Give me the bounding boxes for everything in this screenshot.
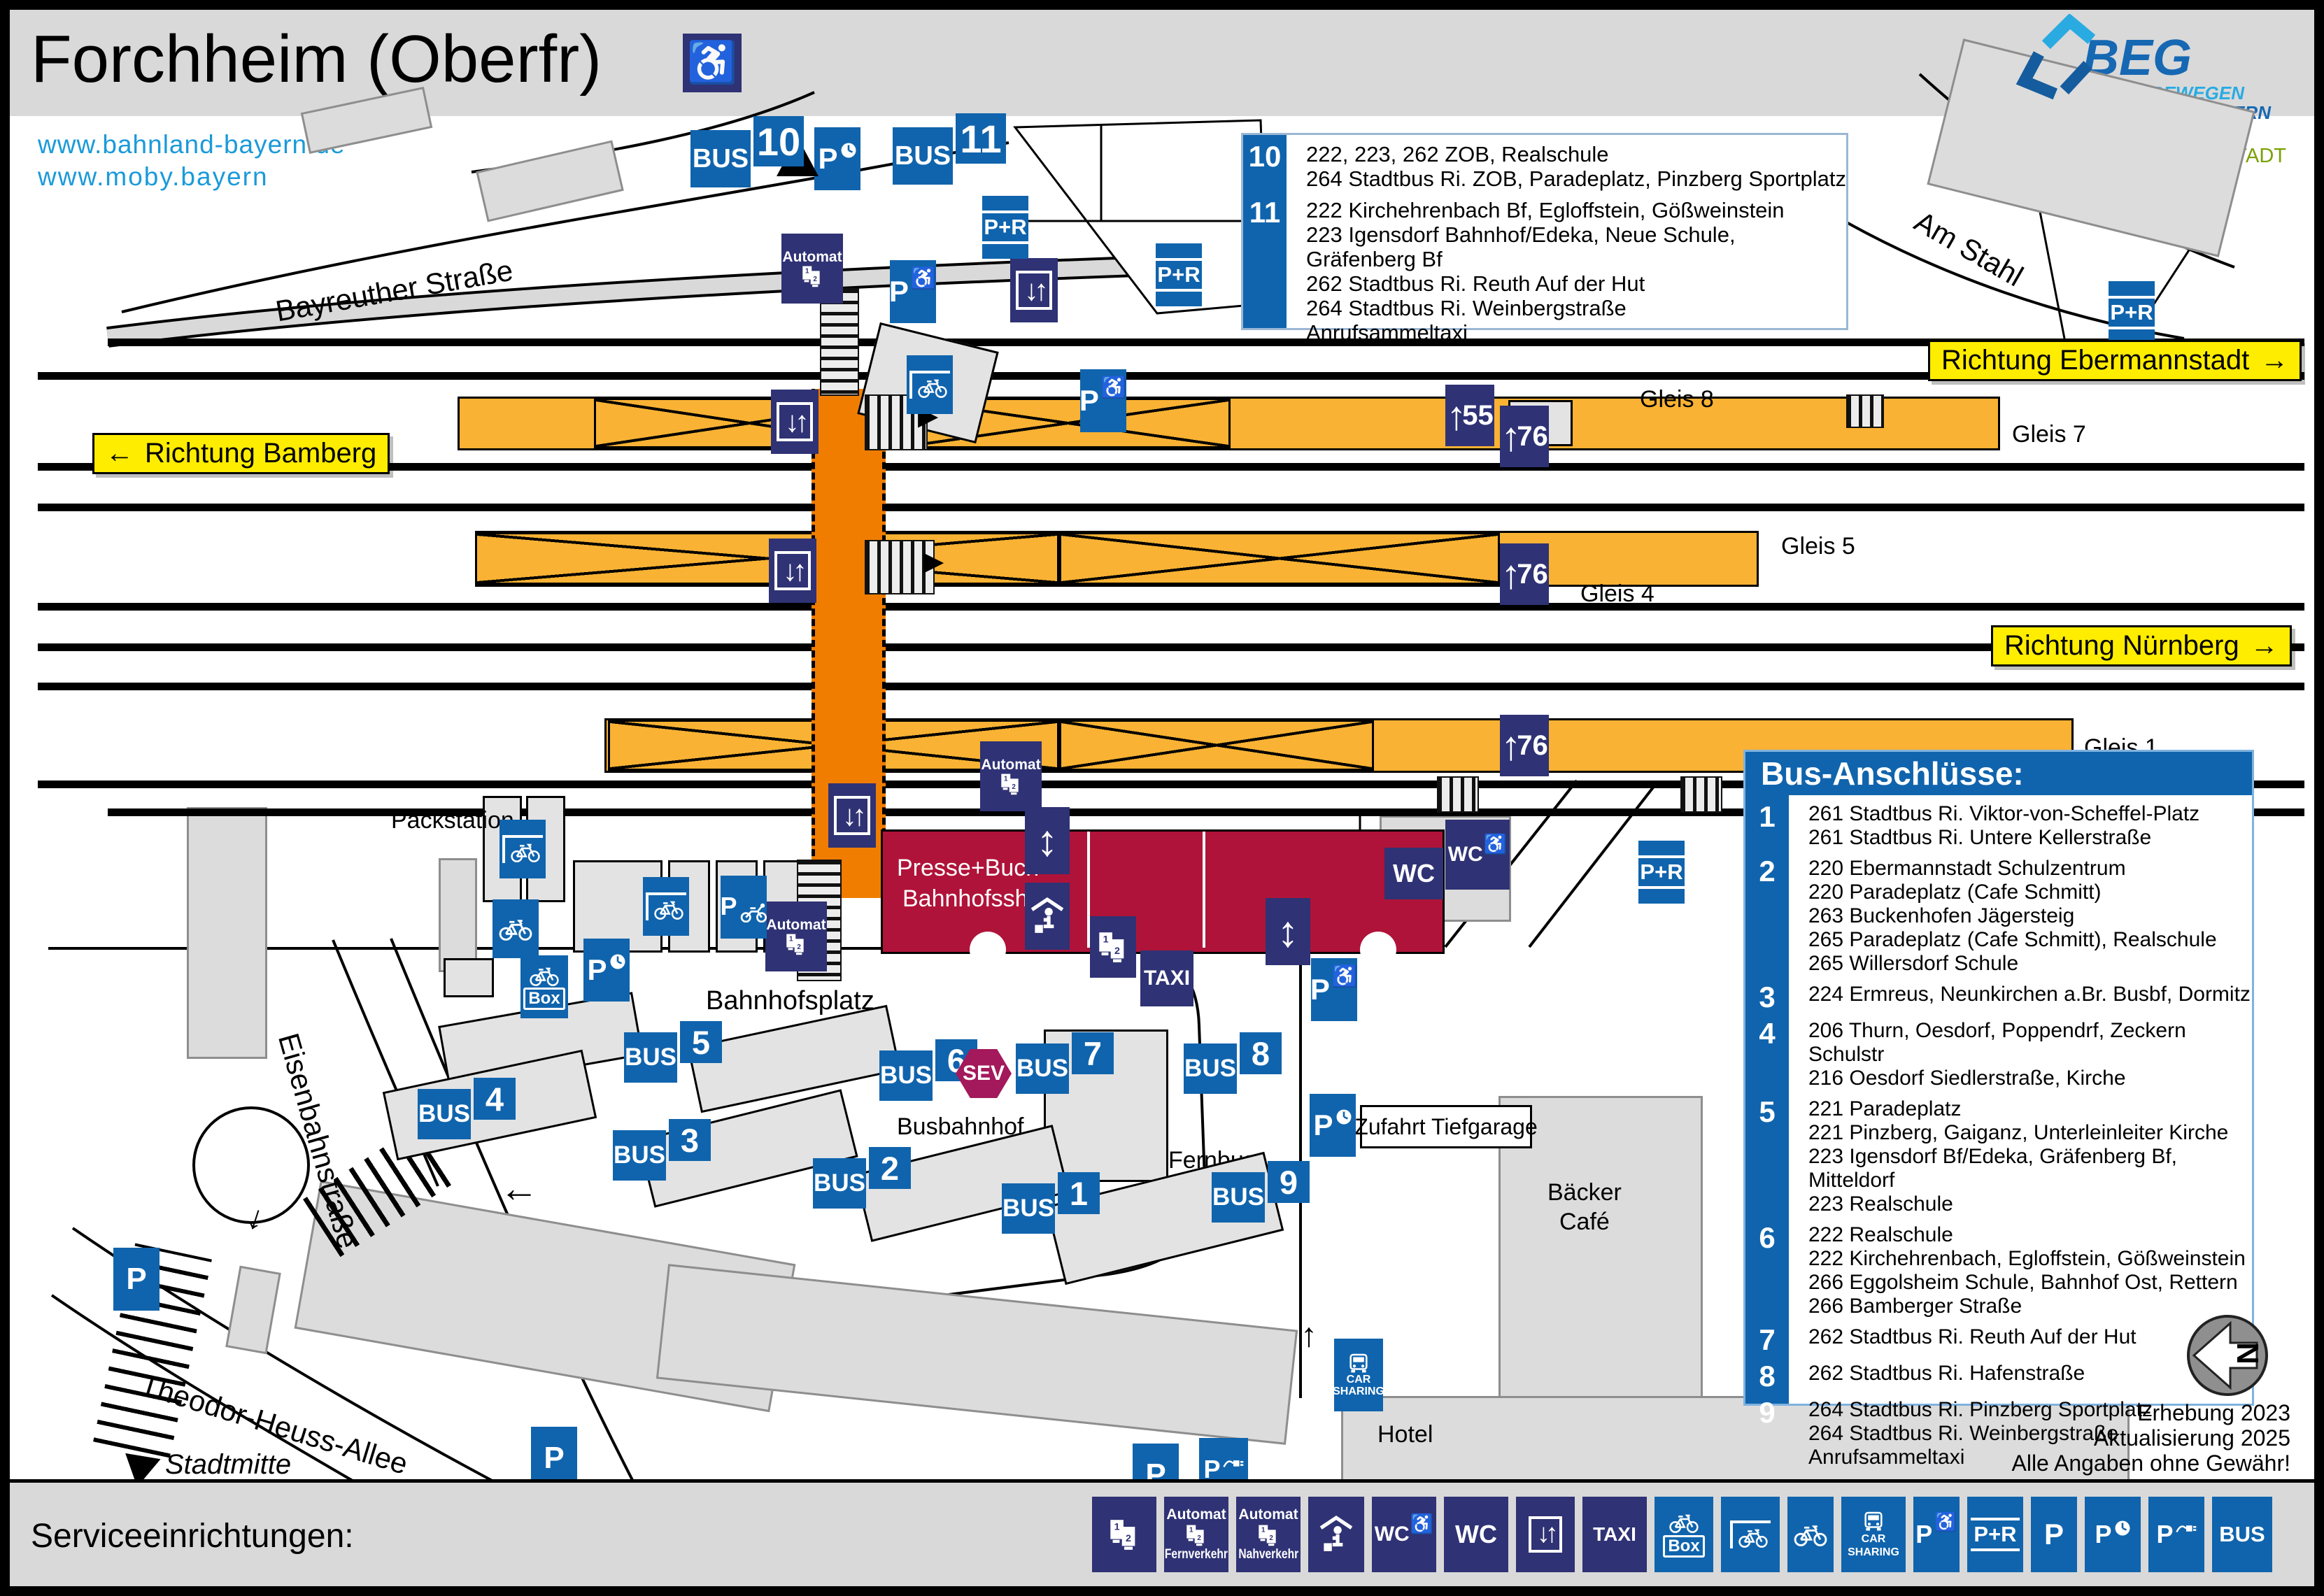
route-line: 261 Stadtbus Ri. Viktor-von-Scheffel-Pla… [1808, 802, 2199, 826]
route-group: 5221 Paradeplatz221 Pinzberg, Gaiganz, U… [1745, 1097, 2252, 1216]
stop-number: 2 [1745, 857, 1789, 976]
taxi-icon: TAXI [1582, 1497, 1647, 1572]
platform-height-76-sign: ↑76 [1500, 543, 1549, 605]
bus-stop-8: BUS8 [1184, 1043, 1282, 1094]
car-sharing-icon: CARSHARING [1841, 1497, 1906, 1572]
elevator-icon: ↓↑ [771, 390, 819, 454]
gleis-5-label: Gleis 5 [1781, 533, 1855, 560]
bike-box-icon: Box [1655, 1497, 1713, 1572]
taxi-icon: TAXI [1140, 950, 1193, 1006]
bus-connections-box: Bus-Anschlüsse: 1261 Stadtbus Ri. Viktor… [1743, 750, 2254, 1406]
route-group: 1261 Stadtbus Ri. Viktor-von-Scheffel-Pl… [1745, 802, 2252, 850]
ticket-machine-local-icon: AutomatNahverkehr [1236, 1497, 1301, 1572]
bus-connections-list: 1261 Stadtbus Ri. Viktor-von-Scheffel-Pl… [1745, 795, 2252, 1404]
bus-stop-7: BUS7 [1016, 1043, 1114, 1094]
covered-bike-parking-icon [1721, 1497, 1780, 1572]
elevator-vertical-icon: ↕ [1025, 807, 1070, 874]
route-line: 264 Stadtbus Ri. Weinbergstraße [1306, 296, 1846, 320]
stop-number: 10 [1243, 142, 1287, 191]
route-lines: 262 Stadtbus Ri. Reuth Auf der Hut [1789, 1325, 2137, 1355]
route-lines: 261 Stadtbus Ri. Viktor-von-Scheffel-Pla… [1789, 802, 2199, 850]
baecker-label-1: Bäcker [1547, 1179, 1622, 1206]
arrow-left-icon: ← [106, 438, 134, 469]
gleis-4-label: Gleis 4 [1580, 580, 1655, 608]
route-group: 2220 Ebermannstadt Schulzentrum220 Parad… [1745, 857, 2252, 976]
parking-accessible-icon: P♿ [1913, 1497, 1960, 1572]
gleis-7-label: Gleis 7 [2012, 421, 2086, 448]
zufahrt-tiefgarage-box: Zufahrt Tiefgarage [1360, 1105, 1532, 1148]
wc-icon: WC [1444, 1497, 1508, 1572]
wc-accessible-icon: WC♿ [1372, 1497, 1436, 1572]
note-gewaehr: Alle Angaben ohne Gewähr! [2011, 1451, 2290, 1476]
route-line: 222, 223, 262 ZOB, Realschule [1306, 142, 1846, 166]
route-line: 223 Igensdorf Bahnhof/Edeka, Neue Schule… [1306, 222, 1846, 271]
bus-stop-4: BUS4 [418, 1089, 516, 1139]
ticket-machine-icon: Automat [781, 234, 843, 304]
route-line: 222 Realschule [1808, 1223, 2246, 1247]
stairs-arrow: ▶ [923, 546, 944, 577]
covered-bike-parking-icon [643, 877, 689, 936]
parking-shortterm-icon: P [583, 939, 630, 1002]
accessible-station-icon: ♿ [683, 34, 742, 92]
packstation-building [439, 858, 477, 972]
ticket-counter-icon [1092, 1497, 1156, 1572]
platform-height-76-sign: ↑76 [1500, 406, 1549, 467]
parking-icon: P [2031, 1497, 2077, 1572]
stop-number: 8 [1745, 1362, 1789, 1391]
route-lines: 222 Kirchehrenbach Bf, Egloffstein, Gößw… [1287, 198, 1846, 345]
route-line: 262 Stadtbus Ri. Reuth Auf der Hut [1808, 1325, 2137, 1349]
bus-connections-title: Bus-Anschlüsse: [1745, 752, 2252, 795]
park-and-ride-icon: P+R [1967, 1497, 2023, 1572]
bus-stop-5: BUS5 [624, 1032, 722, 1083]
note-aktualisierung: Aktualisierung 2025 [2094, 1425, 2290, 1451]
route-line: 206 Thurn, Oesdorf, Poppendrf, Zeckern S… [1808, 1019, 2252, 1067]
road-arrow-up-icon: ↑ [1301, 1316, 1317, 1355]
ticket-machine-icon: Automat [765, 902, 827, 971]
packstation-label: Packstation [391, 807, 514, 834]
road-arrow-left-icon: ← [499, 1165, 539, 1211]
bike-parking-icon [1787, 1497, 1834, 1572]
route-group: 3224 Ermreus, Neunkirchen a.Br. Busbf, D… [1745, 983, 2252, 1012]
route-line: 262 Stadtbus Ri. Hafenstraße [1808, 1362, 2085, 1385]
station-arch [970, 932, 1006, 968]
track [38, 504, 2304, 511]
route-lines: 262 Stadtbus Ri. Hafenstraße [1789, 1362, 2085, 1391]
stop-number: 1 [1745, 802, 1789, 850]
bus-stop-1: BUS1 [1002, 1183, 1100, 1234]
park-and-ride-icon: P+R [982, 196, 1028, 259]
stadtmitte-label: Stadtmitte [165, 1449, 291, 1481]
track [38, 683, 2304, 690]
bahnhofsplatz-label: Bahnhofsplatz [706, 986, 874, 1016]
stairs [1680, 776, 1722, 813]
wc-accessible-icon: WC♿ [1445, 820, 1510, 890]
stop-number: 3 [1745, 983, 1789, 1012]
bike-shelter [444, 958, 494, 997]
top-routes-box: 10222, 223, 262 ZOB, Realschule264 Stadt… [1241, 133, 1848, 330]
elevator-icon: ↓↑ [1010, 258, 1058, 322]
baecker-label-2: Café [1559, 1209, 1610, 1236]
parking-accessible-icon: P♿ [890, 260, 936, 323]
stop-number: 11 [1243, 198, 1287, 345]
route-line: 216 Oesdorf Siedlerstraße, Kirche [1808, 1067, 2252, 1090]
moped-parking-icon: P [721, 876, 767, 939]
compass-icon: N [2184, 1312, 2271, 1399]
park-and-ride-icon: P+R [2109, 281, 2155, 344]
parking-charging-icon: P [2148, 1497, 2204, 1572]
route-line: 264 Stadtbus Ri. Pinzberg Sportplatz [1808, 1398, 2153, 1422]
platform-roof [1059, 532, 1500, 585]
route-line: 224 Ermreus, Neunkirchen a.Br. Busbf, Do… [1808, 983, 2251, 1006]
route-line: 220 Ebermannstadt Schulzentrum [1808, 857, 2217, 881]
route-line: 266 Eggolsheim Schule, Bahnhof Ost, Rett… [1808, 1271, 2246, 1295]
ticket-counter-icon [1090, 916, 1136, 978]
elevator-vertical-icon: ↕ [1266, 898, 1310, 965]
platform-height-55-sign: ↑55 [1445, 385, 1494, 446]
station-map-page: Forchheim (Oberfr) ♿ BEG WIR BEWEGEN DAS… [0, 0, 2324, 1596]
wc-icon: WC [1384, 848, 1443, 899]
bike-box-icon: Box [520, 955, 568, 1018]
hotel-label: Hotel [1377, 1421, 1433, 1448]
route-group: 4206 Thurn, Oesdorf, Poppendrf, Zeckern … [1745, 1019, 2252, 1090]
route-line: Anrufsammeltaxi [1306, 320, 1846, 345]
legend-row: AutomatFernverkehr AutomatNahverkehr WC♿… [1092, 1497, 2272, 1572]
route-line: 265 Paradeplatz (Cafe Schmitt), Realschu… [1808, 928, 2217, 952]
route-line: 222 Kirchehrenbach, Egloffstein, Gößwein… [1808, 1247, 2246, 1271]
route-line: 266 Bamberger Straße [1808, 1295, 2246, 1318]
elevator-icon: ↓↑ [769, 539, 816, 603]
bus-stop-icon: BUS [2212, 1497, 2272, 1572]
bus-stop-3: BUS3 [613, 1130, 711, 1181]
building-divider [1203, 832, 1205, 948]
route-lines: 222 Realschule222 Kirchehrenbach, Egloff… [1789, 1223, 2246, 1318]
direction-bamberg: ← Richtung Bamberg [92, 433, 390, 474]
parking-icon: P [113, 1248, 160, 1311]
bus-stop-11: BUS11 [893, 127, 1006, 185]
bus-stop-2: BUS2 [813, 1158, 911, 1209]
waiting-area-icon [1308, 1497, 1364, 1572]
stop-number: 4 [1745, 1019, 1789, 1090]
route-lines: 220 Ebermannstadt Schulzentrum220 Parade… [1789, 857, 2217, 976]
route-line: 221 Paradeplatz [1808, 1097, 2252, 1121]
gleis-8-label: Gleis 8 [1640, 386, 1714, 413]
route-line: 261 Stadtbus Ri. Untere Kellerstraße [1808, 826, 2199, 850]
car-sharing-icon: CARSHARING [1334, 1339, 1383, 1411]
ticket-machine-longdistance-icon: AutomatFernverkehr [1164, 1497, 1228, 1572]
arrow-right-icon: → [2251, 630, 2279, 662]
park-and-ride-icon: P+R [1156, 243, 1202, 306]
route-group: 10222, 223, 262 ZOB, Realschule264 Stadt… [1243, 142, 1846, 191]
stop-number: 7 [1745, 1325, 1789, 1355]
route-lines: 221 Paradeplatz221 Pinzberg, Gaiganz, Un… [1789, 1097, 2252, 1216]
stop-number: 9 [1745, 1398, 1789, 1469]
bus-stop-9: BUS9 [1212, 1172, 1310, 1223]
platform-height-76-sign: ↑76 [1500, 715, 1549, 776]
route-lines: 206 Thurn, Oesdorf, Poppendrf, Zeckern S… [1789, 1019, 2252, 1090]
bike-parking-icon [493, 899, 539, 958]
covered-bike-parking-icon [907, 355, 953, 414]
route-group: 11222 Kirchehrenbach Bf, Egloffstein, Gö… [1243, 198, 1846, 345]
route-group: 7262 Stadtbus Ri. Reuth Auf der Hut [1745, 1325, 2252, 1355]
waiting-area-icon [1025, 883, 1070, 950]
shop-label-line1: Presse+Buch [897, 855, 1039, 882]
route-lines: 224 Ermreus, Neunkirchen a.Br. Busbf, Do… [1789, 983, 2251, 1012]
route-line: 265 Willersdorf Schule [1808, 952, 2217, 976]
direction-nuernberg: Richtung Nürnberg → [1991, 625, 2292, 667]
elevator-icon: ↓↑ [1516, 1497, 1575, 1572]
top-routes-list: 10222, 223, 262 ZOB, Realschule264 Stadt… [1243, 135, 1846, 328]
stop-number: 5 [1745, 1097, 1789, 1216]
parking-accessible-icon: P♿ [1080, 369, 1126, 432]
parking-accessible-icon: P♿ [1311, 958, 1357, 1021]
direction-ebermannstadt: Richtung Ebermannstadt → [1928, 340, 2302, 381]
parking-shortterm-icon: P [2085, 1497, 2141, 1572]
elevator-icon: ↓↑ [828, 783, 876, 848]
platform-roof [1059, 720, 1374, 771]
park-and-ride-icon: P+R [1638, 841, 1685, 904]
parking-shortterm-icon: P [1310, 1094, 1356, 1157]
route-line: 262 Stadtbus Ri. Reuth Auf der Hut [1306, 271, 1846, 296]
note-erhebung: Erhebung 2023 [2137, 1400, 2290, 1426]
route-lines: 222, 223, 262 ZOB, Realschule264 Stadtbu… [1287, 142, 1846, 191]
station-arch [1360, 932, 1396, 968]
parking-shortterm-icon: P [814, 127, 860, 190]
beg-logo-icon [2013, 14, 2104, 105]
route-line: 263 Buckenhofen Jägersteig [1808, 904, 2217, 928]
route-line: 221 Pinzberg, Gaiganz, Unterleinleiter K… [1808, 1121, 2252, 1145]
ticket-machine-icon: Automat [980, 741, 1042, 811]
route-line: 220 Paradeplatz (Cafe Schmitt) [1808, 881, 2217, 904]
compass-north-label: N [2231, 1342, 2266, 1365]
route-line: 223 Igensdorf Bf/Edeka, Gräfenberg Bf, M… [1808, 1145, 2252, 1192]
route-group: 8262 Stadtbus Ri. Hafenstraße [1745, 1362, 2252, 1391]
footer-title: Serviceeinrichtungen: [31, 1517, 354, 1555]
stairs [820, 288, 859, 396]
route-line: 264 Stadtbus Ri. ZOB, Paradeplatz, Pinzb… [1306, 166, 1846, 191]
track [38, 643, 2304, 651]
stop-number: 6 [1745, 1223, 1789, 1318]
stairs [1846, 394, 1884, 428]
stairs [1437, 776, 1479, 813]
route-line: 223 Realschule [1808, 1192, 2252, 1216]
route-line: 222 Kirchehrenbach Bf, Egloffstein, Gößw… [1306, 198, 1846, 222]
platform-roof [475, 532, 1059, 585]
bus-stop-10: BUS10 [690, 130, 804, 187]
building [187, 807, 267, 1059]
covered-bike-parking-icon [499, 820, 546, 878]
arrow-right-icon: → [2260, 345, 2288, 376]
route-group: 6222 Realschule222 Kirchehrenbach, Eglof… [1745, 1223, 2252, 1318]
track [38, 603, 2304, 611]
